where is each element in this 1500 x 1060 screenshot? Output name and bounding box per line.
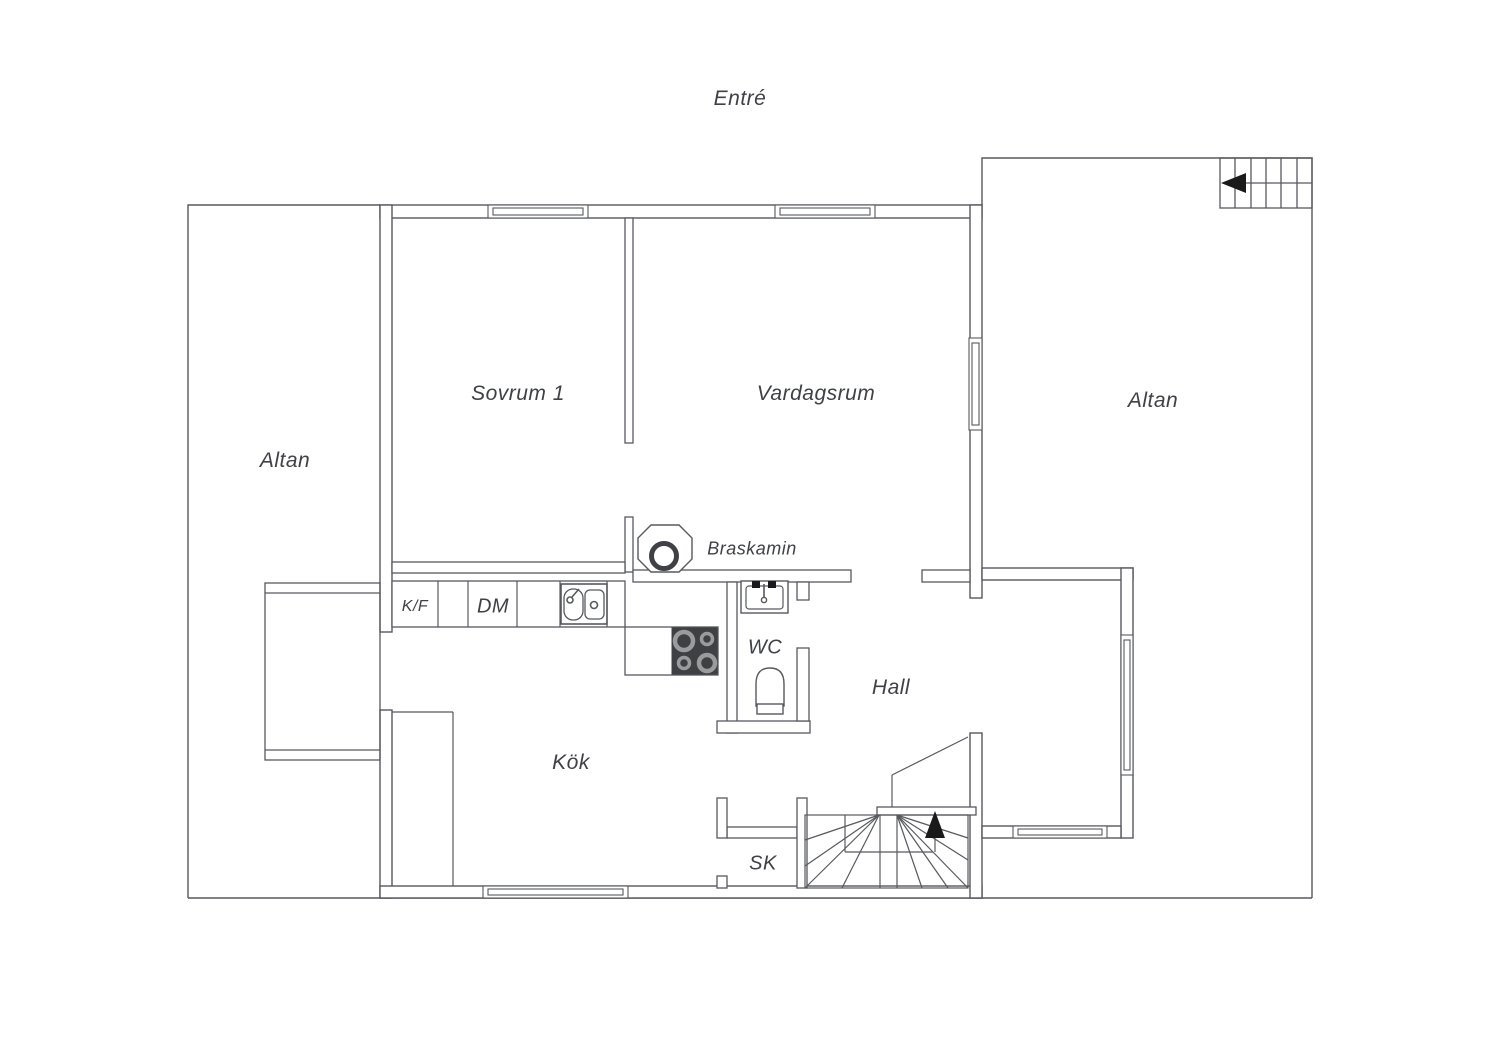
wc-toilet [756, 668, 784, 714]
altan-right-outline [982, 158, 1312, 898]
bay-wall-top [982, 568, 1133, 580]
label-wc: WC [748, 637, 782, 660]
label-altan-left: Altan [260, 449, 310, 473]
stairs-railing-diagonal [892, 737, 968, 775]
exterior-wall-left-upper [380, 205, 392, 632]
label-braskamin: Braskamin [707, 539, 797, 560]
label-vardagsrum: Vardagsrum [757, 382, 876, 406]
windows [483, 205, 1133, 898]
wall-sk-top [727, 827, 797, 838]
label-altan-right: Altan [1128, 389, 1178, 413]
wall-wc-right-stub [797, 582, 809, 600]
wall-sovrum-vardagsrum-upper [625, 218, 633, 443]
label-entre: Entré [714, 87, 767, 111]
kitchen-counter [392, 581, 718, 675]
exterior-wall-left-lower [380, 710, 392, 898]
wall-wc-left [727, 582, 737, 733]
wall-stairs-top [877, 807, 976, 815]
label-sovrum1: Sovrum 1 [471, 382, 565, 406]
entry-stairs [1220, 158, 1312, 208]
wall-sk-left-bottom-stub [717, 876, 727, 888]
label-hall: Hall [872, 676, 910, 700]
window-bay-right [1121, 635, 1133, 775]
deck-outlines [188, 158, 1312, 898]
entry-stairs-arrow-icon [1221, 173, 1246, 193]
label-sk: SK [749, 853, 777, 876]
label-kf: K/F [402, 598, 428, 616]
label-dm: DM [477, 596, 509, 619]
kitchen-closet [392, 712, 453, 886]
floor-plan: Entré Sovrum 1 Vardagsrum Altan Altan Br… [0, 0, 1500, 1060]
porch-platform [265, 583, 380, 760]
wall-sovrum-kok [392, 562, 625, 573]
wall-sk-left-stub [717, 798, 727, 838]
window-vardagsrum-top [775, 205, 875, 218]
exterior-wall-top [380, 205, 982, 218]
fireplace [638, 525, 692, 572]
wall-wc-right [797, 648, 809, 721]
wc-washbasin [741, 581, 788, 613]
stove [672, 628, 717, 674]
altan-left-outline [188, 205, 380, 898]
window-kok-bottom [483, 886, 628, 898]
wall-hall-north [922, 570, 970, 582]
wall-sovrum-vardagsrum-lower [625, 517, 633, 572]
label-kok: Kök [552, 751, 590, 775]
wall-wc-bottom [717, 721, 810, 733]
floor-plan-drawing [0, 0, 1500, 1060]
window-bay-bottom [1013, 826, 1107, 838]
window-vardagsrum-right [969, 338, 982, 430]
window-sovrum-top [488, 205, 588, 218]
